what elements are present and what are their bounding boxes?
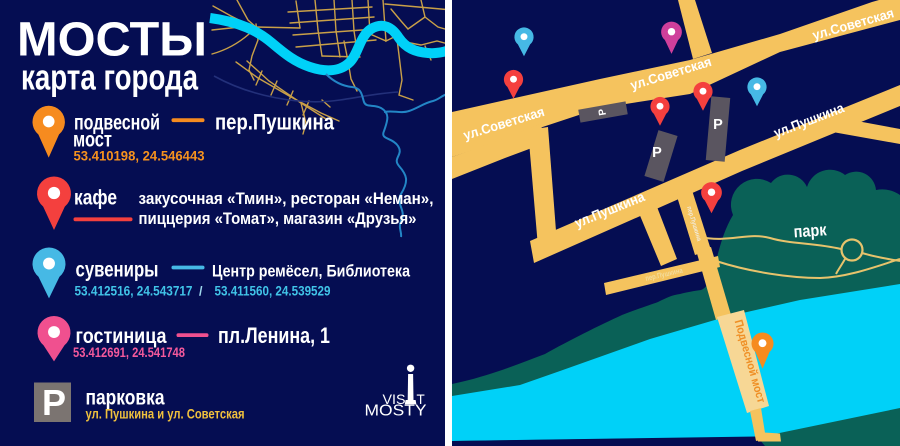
svg-text:P: P	[713, 117, 723, 133]
svg-text:53.411560, 24.539529: 53.411560, 24.539529	[215, 284, 331, 299]
svg-text:53.412691, 24.541748: 53.412691, 24.541748	[73, 345, 185, 360]
svg-text:пл.Ленина, 1: пл.Ленина, 1	[218, 323, 330, 348]
svg-text:карта города: карта города	[21, 57, 199, 98]
svg-text:P: P	[42, 382, 66, 423]
svg-text:53.410198, 24.546443: 53.410198, 24.546443	[74, 148, 205, 164]
svg-text:парк: парк	[793, 220, 828, 241]
svg-text:ул. Пушкина и ул. Советская: ул. Пушкина и ул. Советская	[86, 407, 245, 422]
svg-text:сувениры: сувениры	[76, 259, 159, 282]
svg-text:P: P	[652, 145, 662, 161]
svg-text:53.412516, 24.543717: 53.412516, 24.543717	[75, 284, 193, 299]
svg-text:закусочная «Тмин», ресторан «Н: закусочная «Тмин», ресторан «Неман»,	[139, 190, 434, 208]
svg-text:пер.Пушкина: пер.Пушкина	[215, 110, 335, 135]
svg-text:MOSTY: MOSTY	[365, 403, 427, 420]
svg-text:пиццерия «Томат», магазин «Дру: пиццерия «Томат», магазин «Друзья»	[139, 210, 417, 228]
svg-text:Центр ремёсел, Библиотека: Центр ремёсел, Библиотека	[212, 262, 410, 281]
svg-text:кафе: кафе	[74, 187, 117, 210]
svg-text:/: /	[199, 285, 203, 299]
